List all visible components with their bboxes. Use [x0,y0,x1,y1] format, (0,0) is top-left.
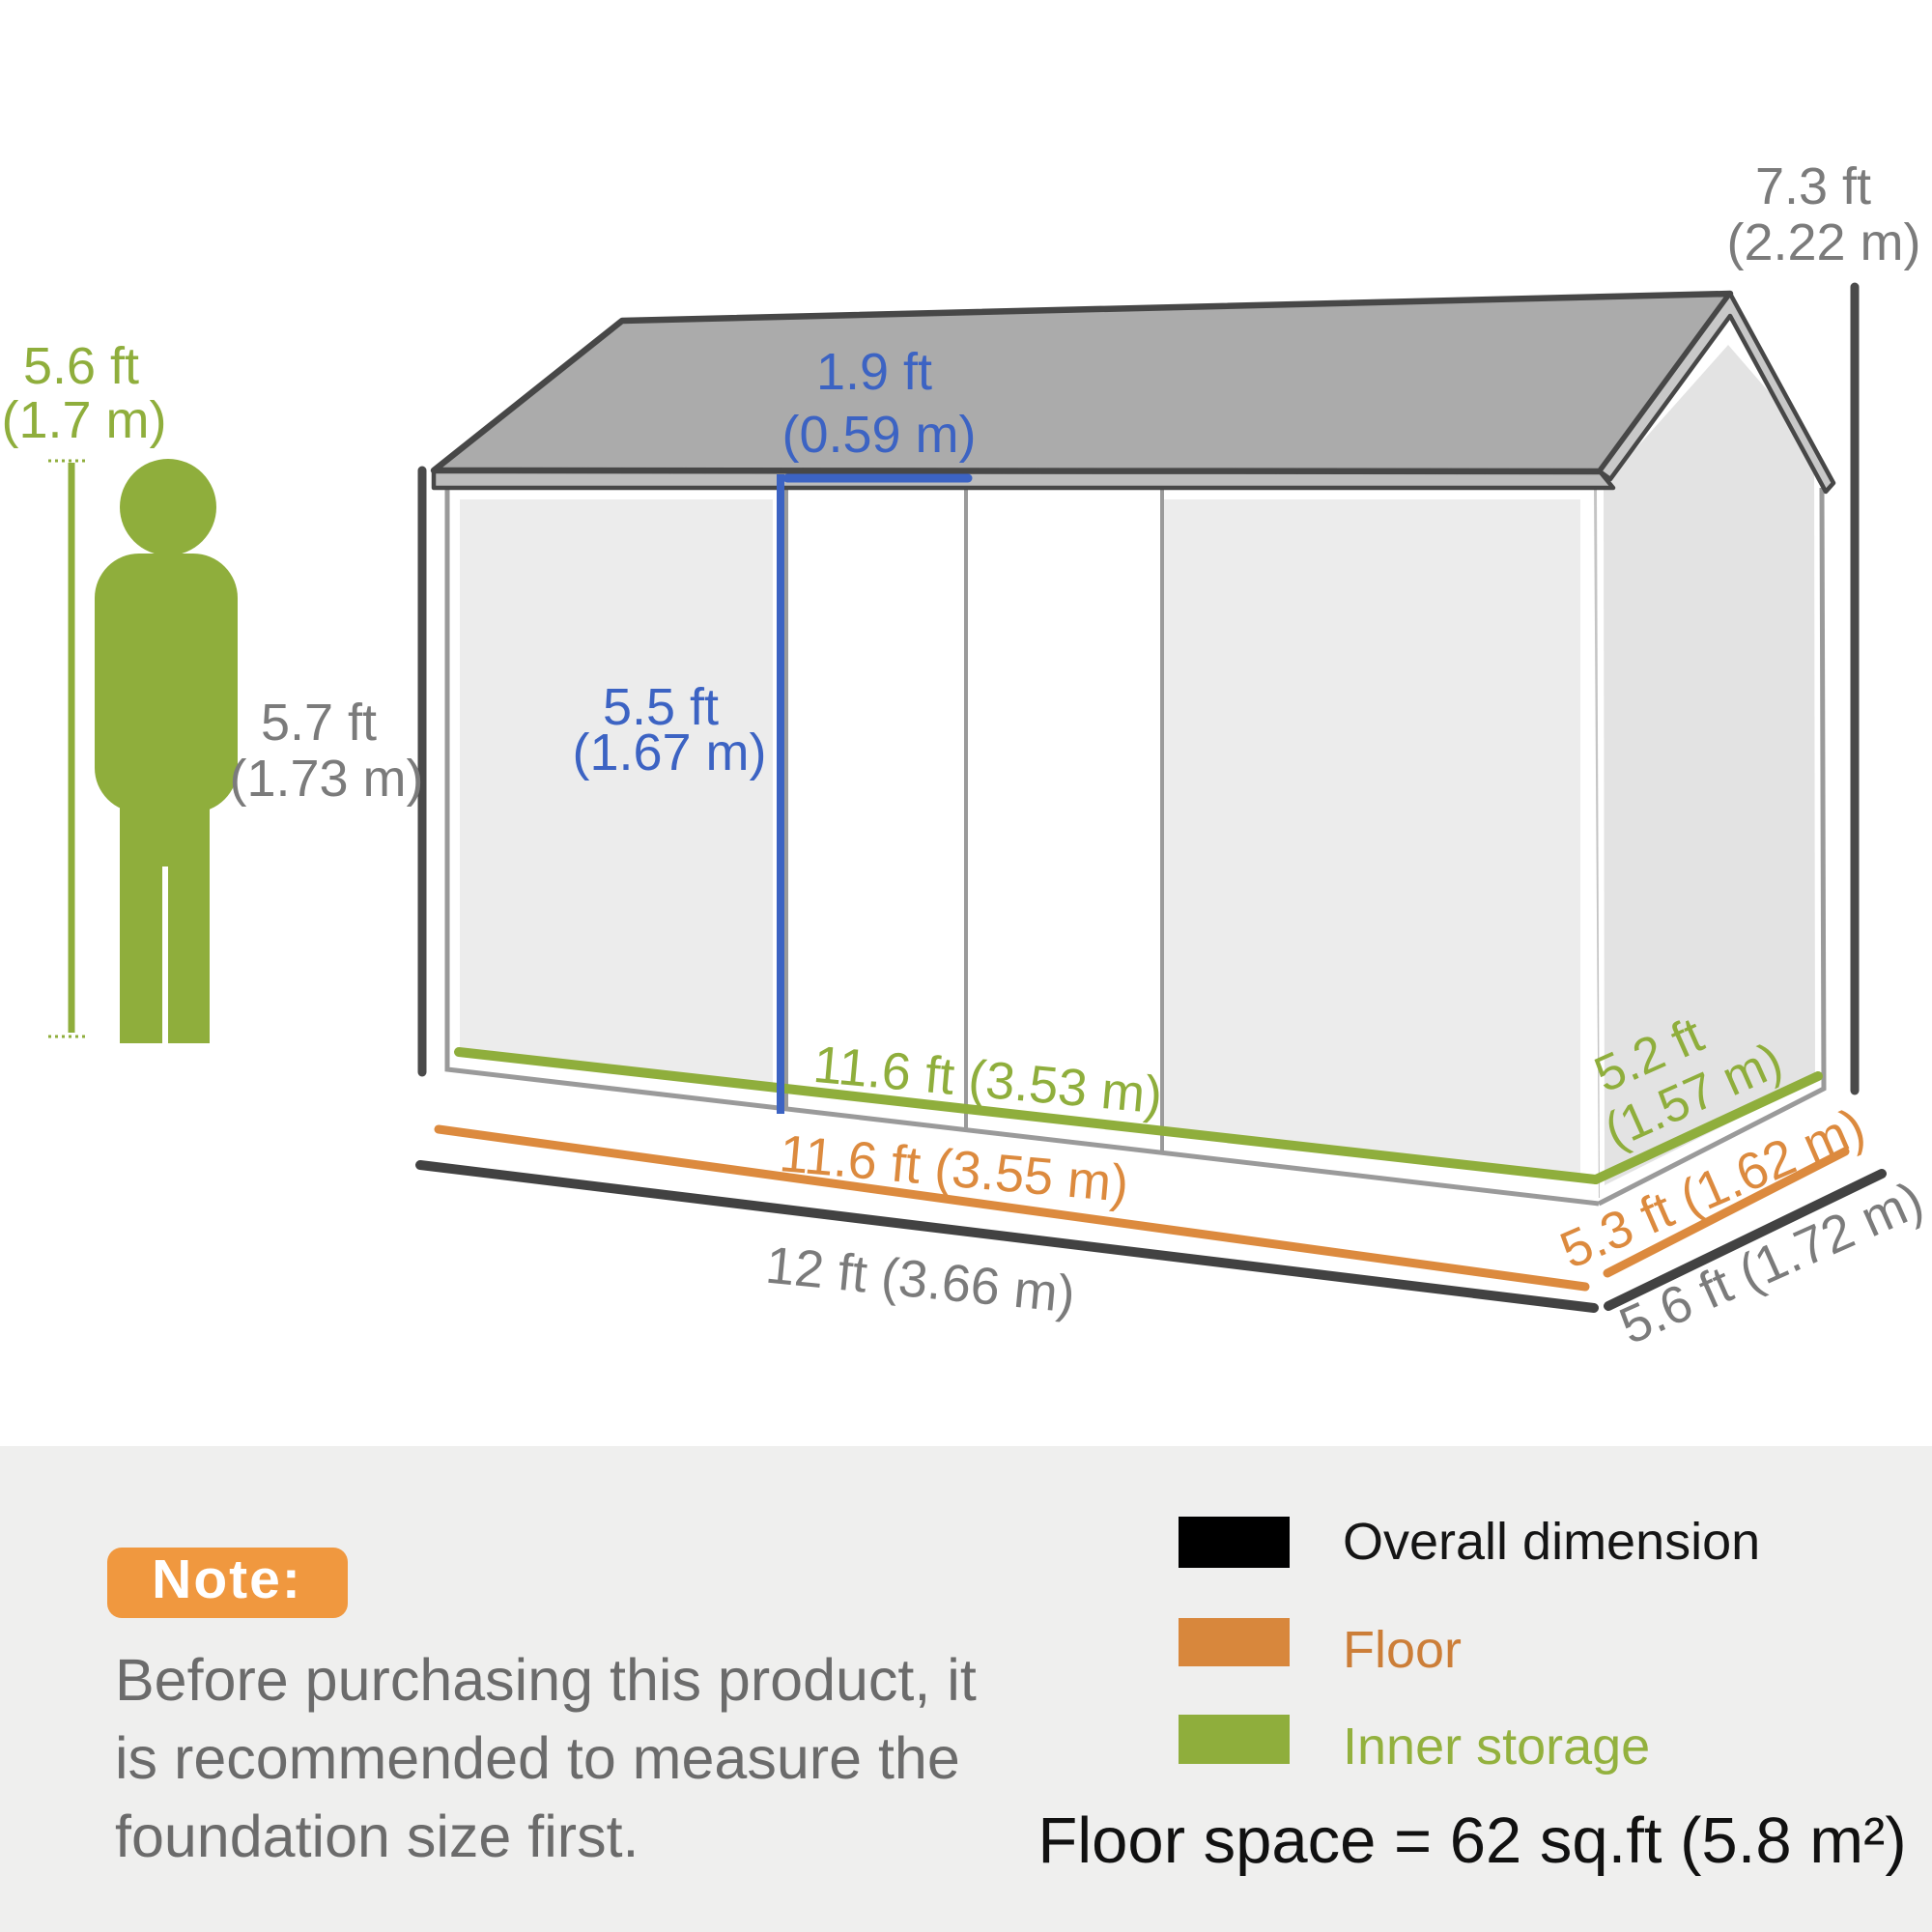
svg-text:Floor space = 62 sq.ft (5.8 m²: Floor space = 62 sq.ft (5.8 m²) [1037,1804,1906,1877]
svg-text:7.3 ft: 7.3 ft [1755,157,1871,215]
svg-text:Before purchasing this product: Before purchasing this product, it [115,1647,977,1713]
svg-text:Note:: Note: [152,1548,302,1610]
svg-text:5.6 ft: 5.6 ft [23,337,139,395]
svg-text:1.9 ft: 1.9 ft [816,343,932,401]
svg-text:5.7 ft: 5.7 ft [261,694,377,752]
svg-text:Floor: Floor [1343,1621,1462,1679]
svg-text:foundation size first.: foundation size first. [115,1804,639,1869]
svg-text:(0.59 m): (0.59 m) [781,406,976,464]
svg-text:Overall dimension: Overall dimension [1343,1513,1760,1571]
svg-text:(1.73 m): (1.73 m) [229,750,423,808]
svg-text:is recommended to measure the: is recommended to measure the [115,1725,960,1791]
svg-text:(2.22 m): (2.22 m) [1726,213,1920,271]
svg-text:Inner storage: Inner storage [1343,1718,1650,1776]
svg-text:(1.7 m): (1.7 m) [1,391,166,449]
svg-text:(1.67 m): (1.67 m) [572,724,766,781]
